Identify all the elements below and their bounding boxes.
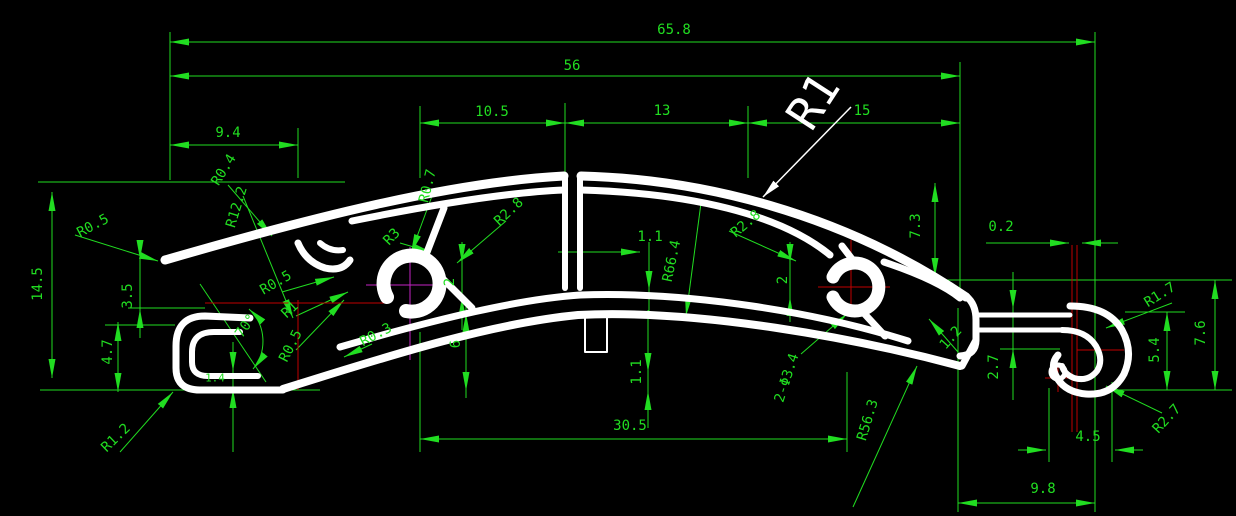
dim-label: R2.7	[1150, 402, 1183, 436]
dim-label: R3	[381, 226, 403, 248]
dim-label: 4.5	[1075, 430, 1100, 444]
dim-label: 1.4	[205, 373, 225, 384]
dim-label: 7.3	[909, 213, 923, 238]
dim-label: 3.5	[121, 283, 135, 308]
dim-label: 30.5	[613, 419, 647, 433]
dim-label: 4.7	[101, 339, 115, 364]
dim-label: R56.3	[855, 398, 881, 442]
dim-label: 9.4	[215, 126, 240, 140]
dim-label: 15	[854, 104, 871, 118]
dim-label: 10.5	[475, 105, 509, 119]
dim-label: 0.2	[988, 220, 1013, 234]
dim-label: R66.4	[661, 239, 683, 283]
dim-label: R1.7	[1142, 280, 1178, 310]
dim-label: R0.5	[75, 212, 111, 240]
dim-label: 1.1	[630, 359, 644, 384]
cad-drawing-canvas: 65.8569.410.51315R114.5R0.5R0.4R12.23.54…	[0, 0, 1236, 516]
dim-label: R0.3	[358, 321, 394, 349]
dim-label: 2	[443, 278, 457, 286]
dim-label: 9.8	[1030, 482, 1055, 496]
dim-label: 65.8	[657, 23, 691, 37]
dim-label: R1.2	[99, 421, 133, 454]
dim-label: 2-Φ3.4	[773, 352, 802, 404]
dim-label: 13	[654, 104, 671, 118]
dim-label: 1.2	[937, 324, 964, 352]
dim-label: R0.4	[209, 152, 239, 188]
dim-label: 5.4	[1148, 337, 1162, 362]
dim-label: 56	[564, 59, 581, 73]
dim-label: R0.5	[258, 269, 294, 298]
dim-label: R12.2	[224, 185, 250, 229]
dim-label: 7.6	[1194, 320, 1208, 345]
dim-label: R2.8	[729, 208, 764, 240]
labels-layer: 65.8569.410.51315R114.5R0.5R0.4R12.23.54…	[0, 0, 1236, 516]
dim-label: R0.7	[417, 168, 439, 204]
dim-label: 2.7	[987, 354, 1001, 379]
dim-label: R0.5	[277, 328, 305, 364]
dim-label: 6	[449, 340, 463, 348]
dim-label: R1	[779, 65, 848, 137]
dim-label: R2.8	[492, 195, 526, 228]
dim-label: 14.5	[31, 267, 45, 301]
dim-label: 2	[776, 276, 790, 284]
dim-label: 1.1	[637, 230, 662, 244]
dim-label: R1	[279, 299, 301, 321]
dim-label: 70°	[233, 312, 259, 341]
